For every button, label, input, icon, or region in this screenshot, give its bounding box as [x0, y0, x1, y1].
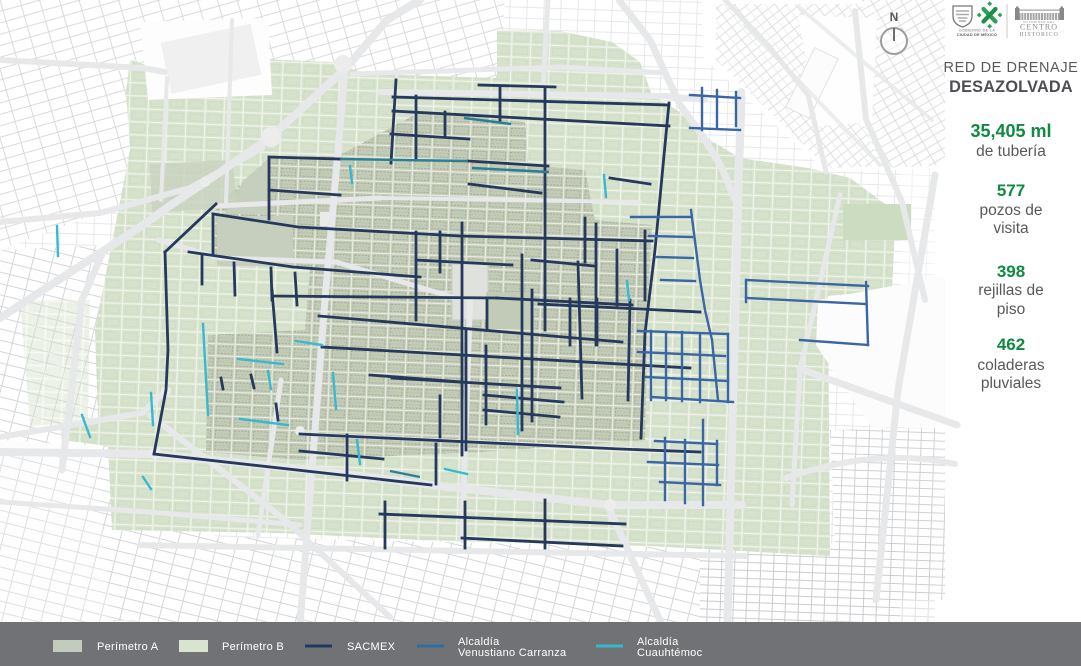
svg-text:pozos de: pozos de: [980, 202, 1043, 219]
svg-text:de tubería: de tubería: [976, 143, 1046, 160]
svg-text:Cuauhtémoc: Cuauhtémoc: [637, 647, 703, 659]
svg-text:coladeras: coladeras: [977, 357, 1044, 374]
svg-text:DESAZOLVADA: DESAZOLVADA: [949, 78, 1073, 96]
svg-text:CIUDAD DE MÉXICO: CIUDAD DE MÉXICO: [957, 32, 997, 37]
svg-text:35,405 ml: 35,405 ml: [970, 121, 1051, 141]
svg-text:Perímetro A: Perímetro A: [97, 641, 159, 653]
svg-text:GOBIERNO DE LA: GOBIERNO DE LA: [959, 29, 996, 33]
svg-text:462: 462: [997, 335, 1025, 354]
svg-text:HISTÓRICO: HISTÓRICO: [1019, 30, 1058, 38]
svg-text:CENTRO: CENTRO: [1020, 23, 1058, 32]
svg-text:Perímetro B: Perímetro B: [222, 641, 284, 653]
svg-text:pluviales: pluviales: [981, 375, 1042, 392]
svg-text:piso: piso: [997, 301, 1025, 318]
svg-text:N: N: [890, 10, 899, 24]
svg-text:RED DE DRENAJE: RED DE DRENAJE: [944, 60, 1079, 76]
svg-text:SACMEX: SACMEX: [347, 641, 396, 653]
svg-text:577: 577: [997, 181, 1025, 200]
svg-text:visita: visita: [993, 220, 1029, 237]
svg-text:Venustiano Carranza: Venustiano Carranza: [458, 647, 567, 659]
svg-text:rejillas de: rejillas de: [978, 282, 1043, 299]
svg-text:398: 398: [997, 262, 1025, 281]
